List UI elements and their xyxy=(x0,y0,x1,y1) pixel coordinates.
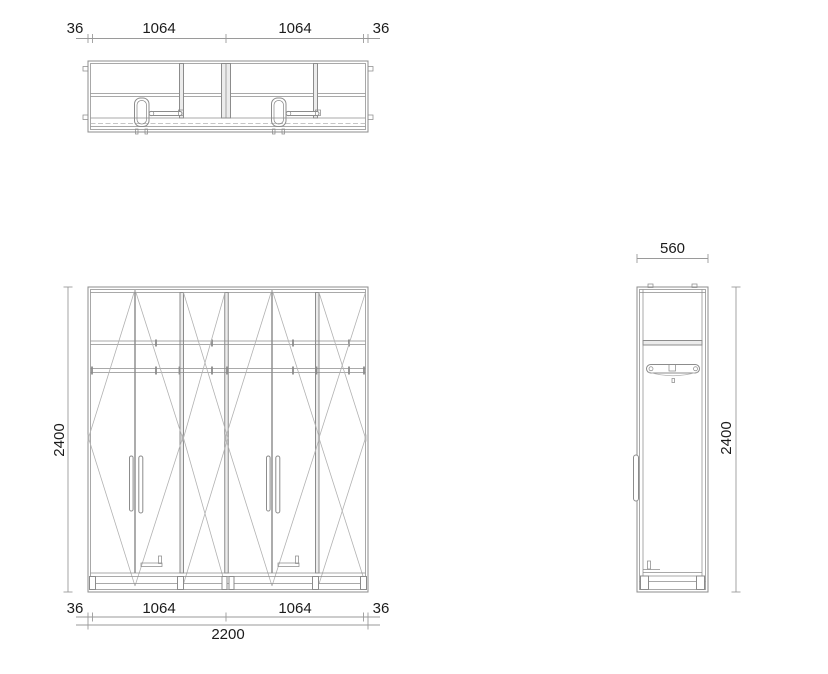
foot xyxy=(697,576,705,590)
door-handle xyxy=(130,456,134,511)
dim-label-depth-560: 560 xyxy=(660,240,685,257)
foot xyxy=(178,577,184,590)
dim-label-side-height-2400: 2400 xyxy=(718,421,735,454)
side-outline xyxy=(637,287,708,592)
hinge-tab-right-bottom xyxy=(368,115,373,120)
hinge-tab-left-bottom xyxy=(83,115,88,120)
foot xyxy=(229,577,234,590)
hinge-tab-left-top xyxy=(83,67,88,72)
dim-label-plan-left-36: 36 xyxy=(67,20,84,37)
dim-label-total-2200: 2200 xyxy=(211,626,244,643)
hinge-cup-inner-icon xyxy=(137,101,147,125)
foot xyxy=(641,576,649,590)
plan-hinge-hardware-1 xyxy=(135,98,184,127)
door-handle xyxy=(267,456,271,511)
rail-bracket-icon xyxy=(647,365,700,374)
door-handle xyxy=(276,456,280,513)
door-handle xyxy=(139,456,143,513)
side-depth-dimension: 560 xyxy=(637,240,708,263)
side-door-handle xyxy=(634,455,639,501)
dim-label-bottom-left-36: 36 xyxy=(67,600,84,617)
front-elevation-view xyxy=(88,287,368,592)
dim-label-plan-bay2-1064: 1064 xyxy=(278,20,311,37)
shelf-bracket-marks xyxy=(155,340,350,347)
side-outline-inner xyxy=(640,290,706,590)
front-height-dimension: 2400 xyxy=(51,287,73,592)
dim-label-bottom-bay1-1064: 1064 xyxy=(142,600,175,617)
foot xyxy=(313,577,319,590)
hinge-tab-right-top xyxy=(368,67,373,72)
dim-label-bottom-bay2-1064: 1064 xyxy=(278,600,311,617)
plan-dimension-row: 36 1064 1064 36 xyxy=(67,20,390,43)
side-height-dimension: 2400 xyxy=(718,287,741,592)
technical-drawing-canvas: 36 1064 1064 36 xyxy=(0,0,828,674)
side-foot-leveler xyxy=(643,561,660,570)
side-shelf xyxy=(643,341,702,346)
dim-label-plan-bay1-1064: 1064 xyxy=(142,20,175,37)
side-elevation-view xyxy=(634,284,709,592)
dim-label-bottom-right-36: 36 xyxy=(373,600,390,617)
foot xyxy=(90,577,96,590)
front-partition-2 xyxy=(316,293,320,574)
foot xyxy=(361,577,367,590)
side-hanging-rail xyxy=(647,365,700,383)
dim-label-plan-right-36: 36 xyxy=(373,20,390,37)
front-width-dimension-row: 36 1064 1064 36 xyxy=(67,600,390,622)
plan-view xyxy=(83,61,373,134)
front-total-width-dimension-row: 2200 xyxy=(76,621,380,644)
foot xyxy=(222,577,227,590)
door-handles xyxy=(130,456,280,513)
drawing-sheet: 36 1064 1064 36 xyxy=(0,0,828,674)
hinge-cup-inner-icon xyxy=(274,101,284,125)
dim-label-front-height-2400: 2400 xyxy=(51,423,68,456)
plinth-feet xyxy=(90,577,367,590)
